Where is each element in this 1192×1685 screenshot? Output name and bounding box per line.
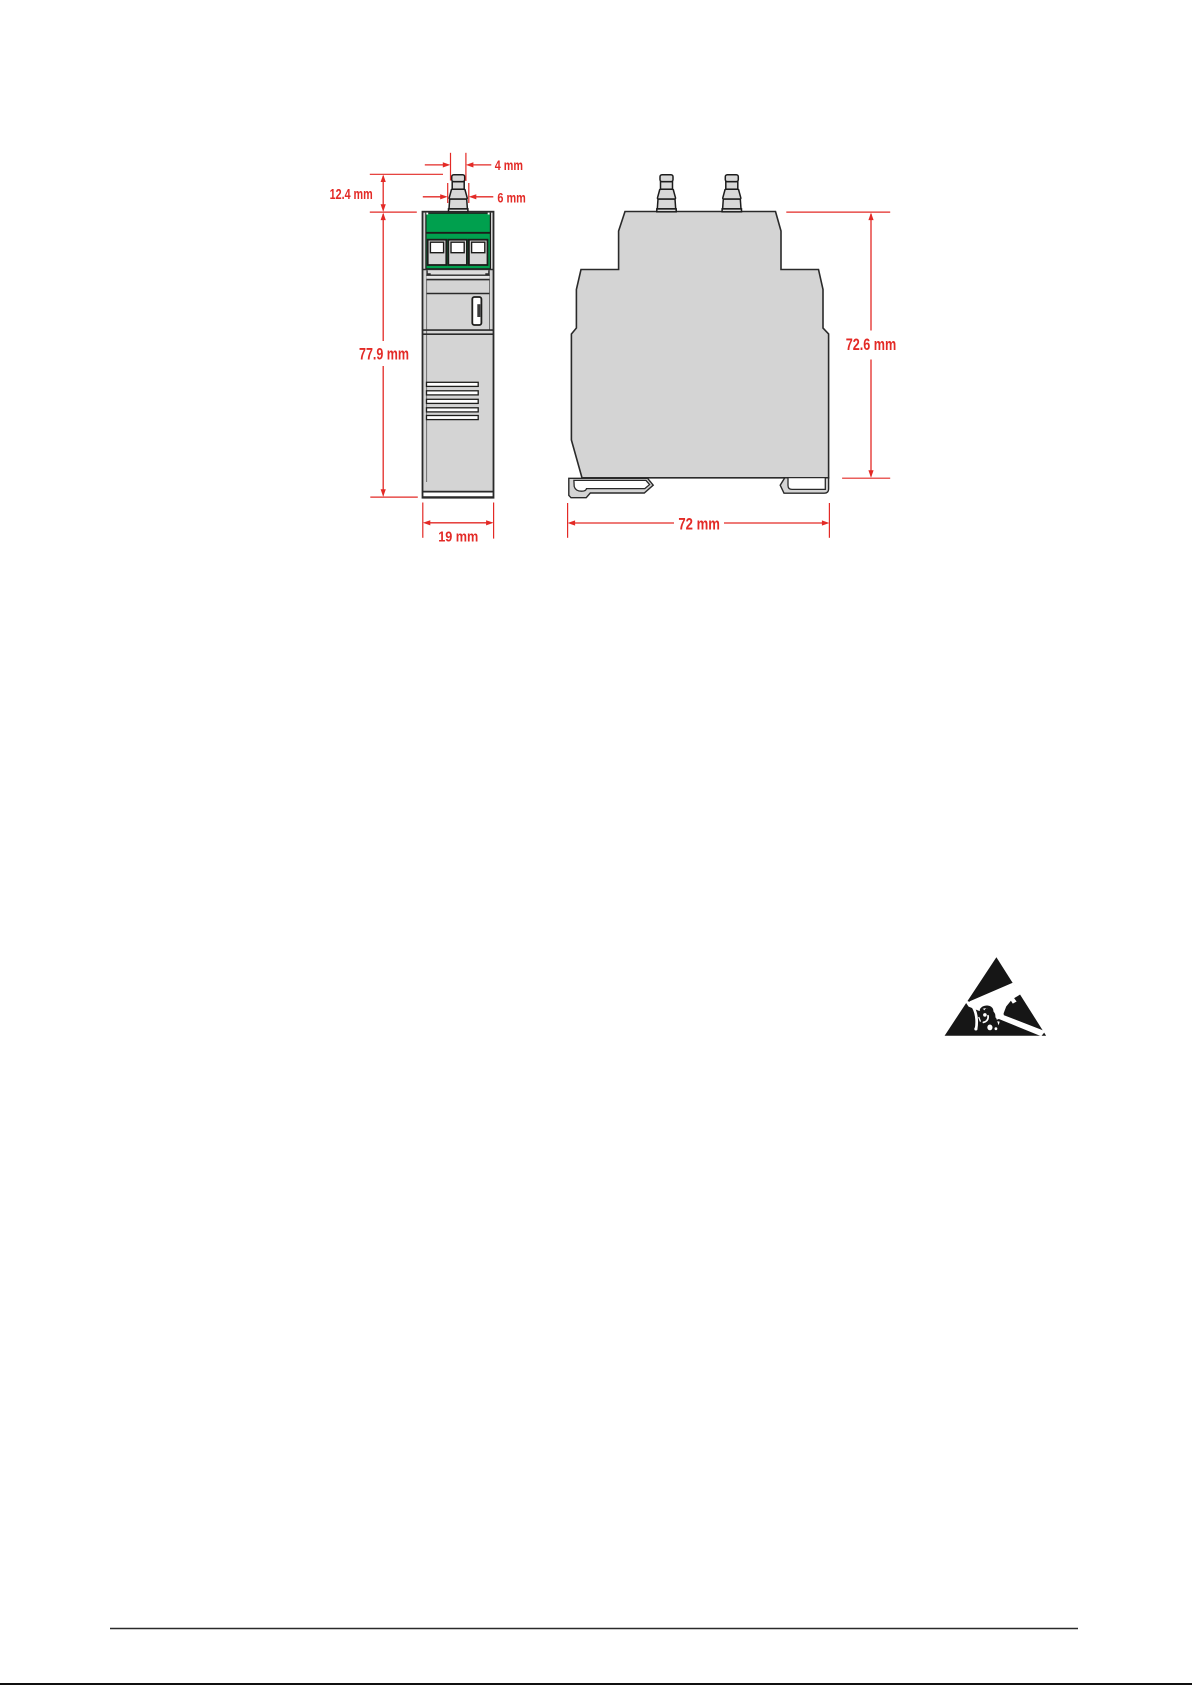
svg-text:12.4 mm: 12.4 mm xyxy=(330,186,373,203)
svg-text:6 mm: 6 mm xyxy=(497,190,525,206)
svg-text:72.6 mm: 72.6 mm xyxy=(846,336,897,354)
svg-text:77.9 mm: 77.9 mm xyxy=(359,345,409,363)
svg-text:4 mm: 4 mm xyxy=(495,158,523,174)
svg-text:19 mm: 19 mm xyxy=(438,528,478,545)
svg-text:72 mm: 72 mm xyxy=(678,515,720,534)
